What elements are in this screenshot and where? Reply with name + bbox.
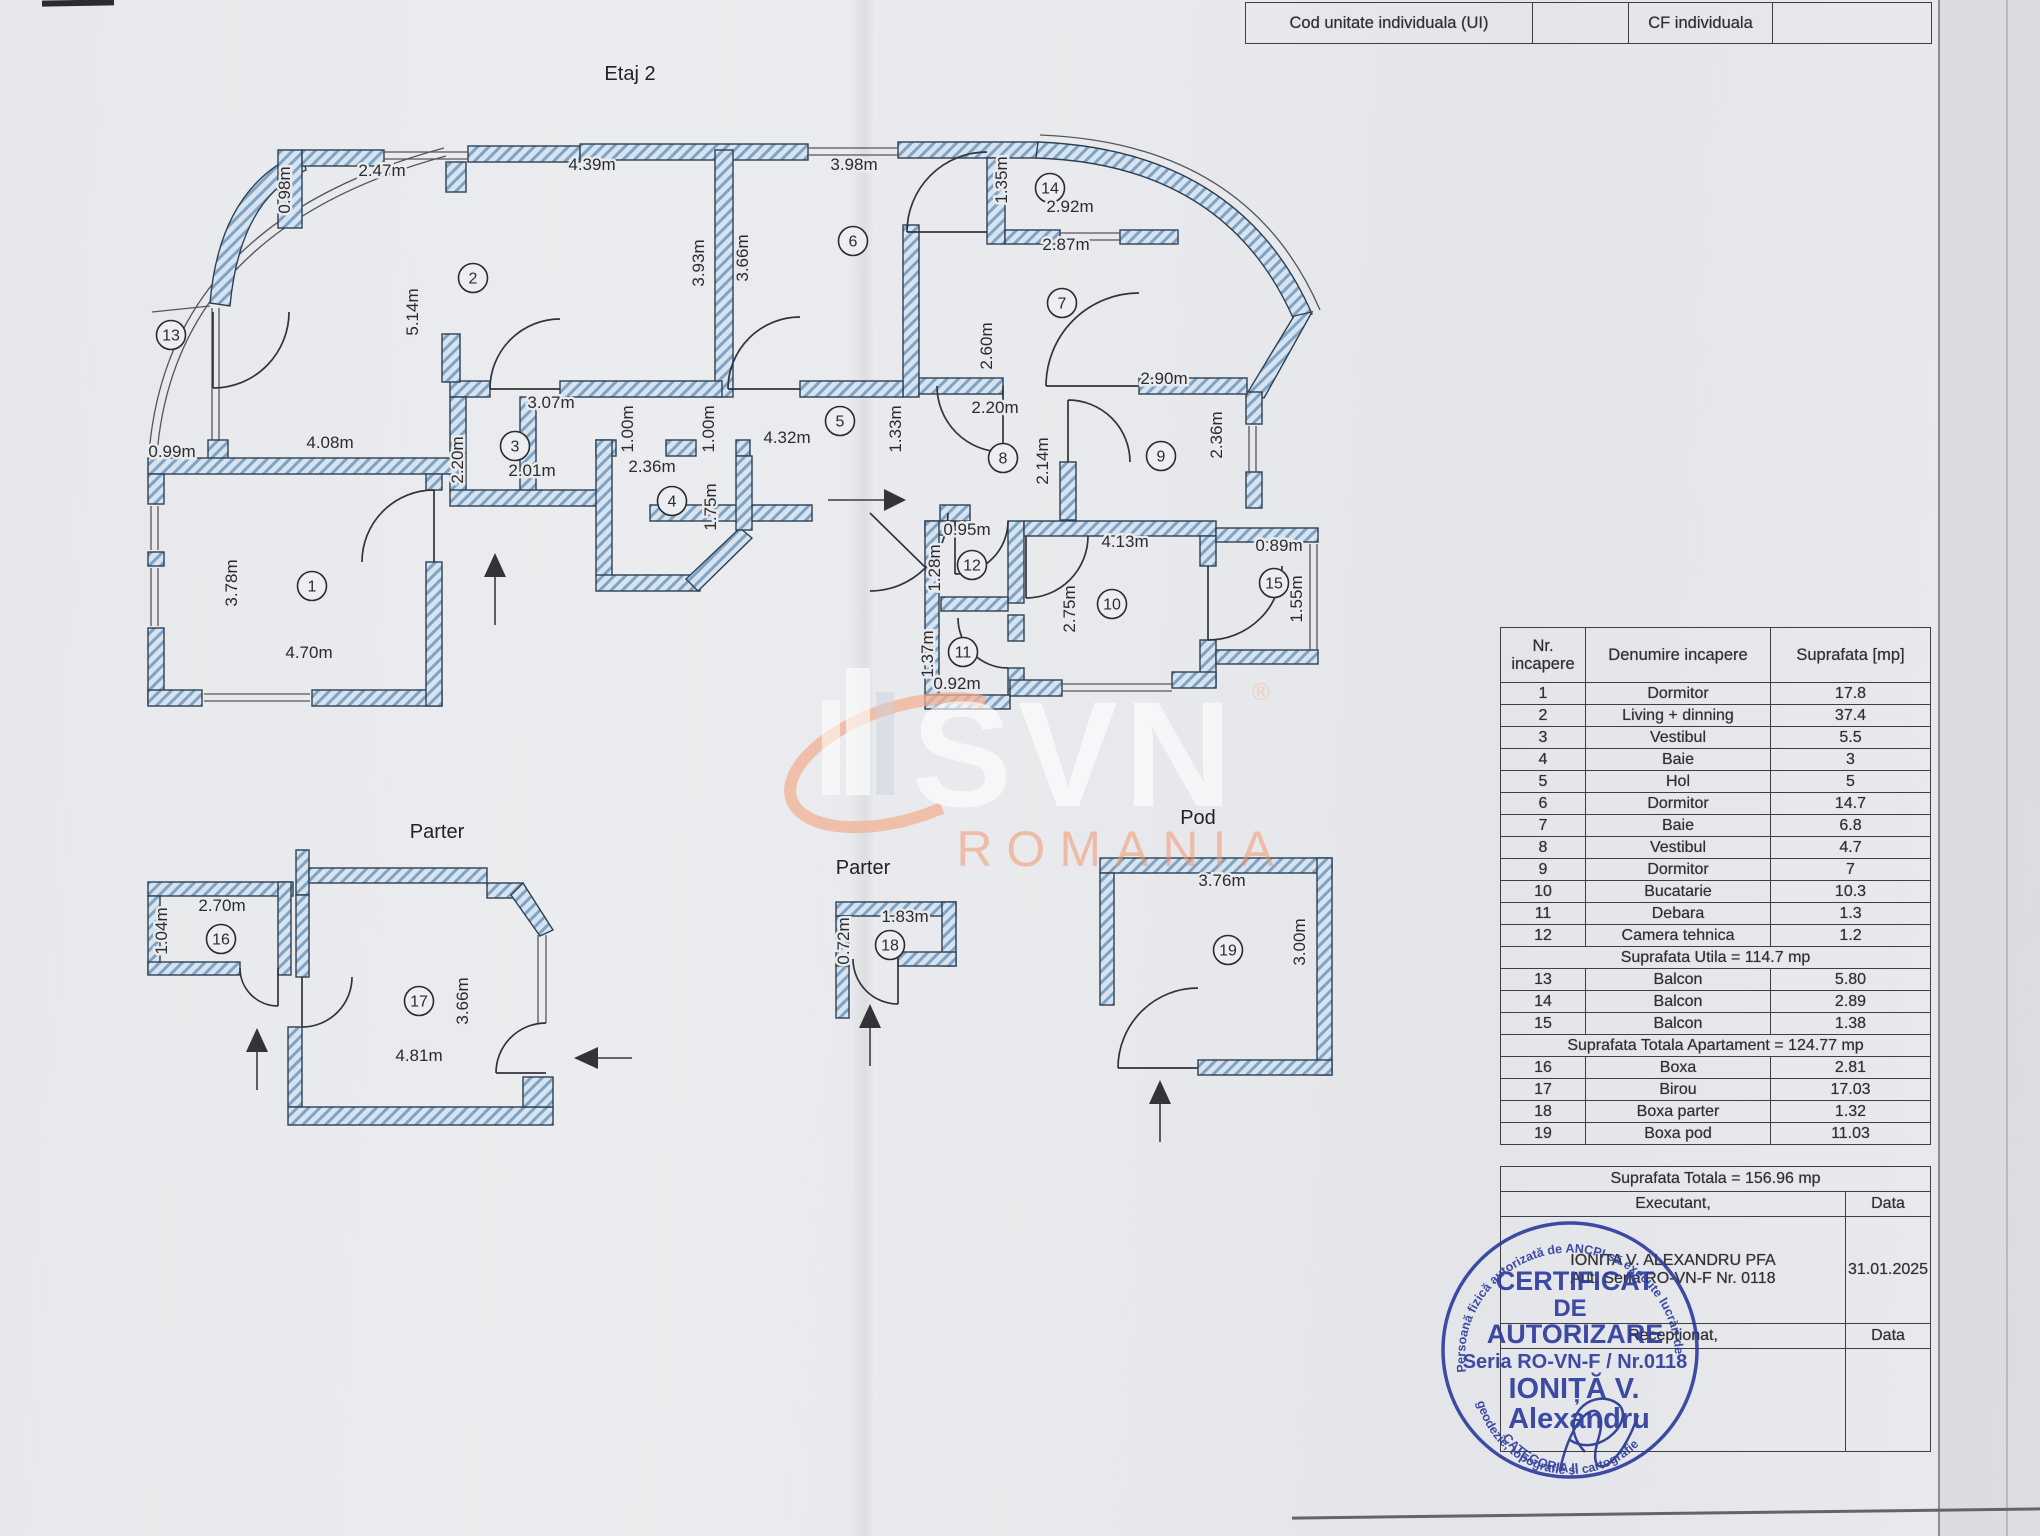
data-label-cell: Data bbox=[1846, 1324, 1931, 1349]
room-name-cell: Dormitor bbox=[1586, 793, 1771, 815]
room-nr-cell: 5 bbox=[1501, 771, 1586, 793]
dimension-label: 2.90m bbox=[1140, 369, 1187, 388]
room-area-cell: 1.32 bbox=[1771, 1101, 1931, 1123]
dimension-label: 0.72m bbox=[834, 917, 853, 964]
etaj2-plan bbox=[148, 135, 1320, 709]
dimension-label: 3.93m bbox=[689, 239, 708, 286]
cf-individuala-cell: CF individuala bbox=[1629, 3, 1773, 44]
room-nr-cell: 17 bbox=[1501, 1079, 1586, 1101]
svn-watermark: SVN ® ROMANIA bbox=[790, 668, 1288, 877]
dimension-label: 4.81m bbox=[395, 1046, 442, 1065]
suprafata-totala-cell: Suprafata Totala = 156.96 mp bbox=[1501, 1167, 1931, 1192]
room-number: 18 bbox=[881, 938, 899, 955]
room-name-cell: Baie bbox=[1586, 815, 1771, 837]
paper-fold-line bbox=[2006, 0, 2008, 1536]
dimension-label: 2.01m bbox=[508, 461, 555, 480]
table-header-row: Nr. incapere Denumire incapere Suprafata… bbox=[1501, 628, 1931, 683]
receptionat-label-cell: Receptionat, bbox=[1501, 1324, 1846, 1349]
dimension-label: 4.08m bbox=[306, 433, 353, 452]
room-number: 2 bbox=[469, 271, 478, 288]
data-label-cell: Data bbox=[1846, 1192, 1931, 1217]
room-area-cell: 37.4 bbox=[1771, 705, 1931, 727]
dimension-label: 3.66m bbox=[733, 234, 752, 281]
room-area-cell: 4.7 bbox=[1771, 837, 1931, 859]
room-area-cell: 5.80 bbox=[1771, 969, 1931, 991]
dimension-label: 3.66m bbox=[453, 977, 472, 1024]
up-arrow-icon bbox=[246, 1028, 268, 1090]
dimension-label: 2.60m bbox=[977, 322, 996, 369]
dimension-label: 1.55m bbox=[1287, 575, 1306, 622]
table-row: 2Living + dinning37.4 bbox=[1501, 705, 1931, 727]
parter-left-labels: 2.70m1.04m16173.66m4.81m bbox=[152, 896, 472, 1065]
table-row: Receptionat, Data bbox=[1501, 1324, 1931, 1349]
dimension-label: 1.83m bbox=[881, 907, 928, 926]
table-row: 16Boxa2.81 bbox=[1501, 1057, 1931, 1079]
up-arrow-icon bbox=[859, 1004, 881, 1066]
room-number: 8 bbox=[999, 451, 1008, 468]
pod-labels: 3.76m193.00m bbox=[1198, 871, 1309, 966]
col-header-suprafata: Suprafata [mp] bbox=[1771, 628, 1931, 683]
date-cell: 31.01.2025 bbox=[1846, 1217, 1931, 1324]
room-area-cell: 6.8 bbox=[1771, 815, 1931, 837]
dimension-label: 1.00m bbox=[699, 405, 718, 452]
room-number: 19 bbox=[1219, 943, 1237, 960]
dimension-label: 1.28m bbox=[925, 544, 944, 591]
subtotal-cell: Suprafata Totala Apartament = 124.77 mp bbox=[1501, 1035, 1931, 1057]
dimension-label: 2.36m bbox=[628, 457, 675, 476]
executant-authorization: Aut. Seria RO-VN-F Nr. 0118 bbox=[1503, 1270, 1843, 1288]
table-row: 19Boxa pod11.03 bbox=[1501, 1123, 1931, 1145]
room-name-cell: Birou bbox=[1586, 1079, 1771, 1101]
room-name-cell: Baie bbox=[1586, 749, 1771, 771]
subtotal-row: Suprafata Utila = 114.7 mp bbox=[1501, 947, 1931, 969]
room-number: 16 bbox=[212, 932, 230, 949]
room-nr-cell: 9 bbox=[1501, 859, 1586, 881]
total-row: Suprafata Totala = 156.96 mp bbox=[1501, 1167, 1931, 1192]
room-number: 17 bbox=[410, 994, 428, 1011]
table-row: 3Vestibul5.5 bbox=[1501, 727, 1931, 749]
empty-cell bbox=[1501, 1349, 1846, 1452]
room-number: 3 bbox=[511, 439, 520, 456]
dimension-label: 1.75m bbox=[701, 483, 720, 530]
room-area-cell: 5.5 bbox=[1771, 727, 1931, 749]
watermark-svn-text: SVN bbox=[912, 670, 1238, 838]
room-areas-table: Nr. incapere Denumire incapere Suprafata… bbox=[1500, 627, 1931, 1145]
room-name-cell: Bucatarie bbox=[1586, 881, 1771, 903]
room-name-cell: Vestibul bbox=[1586, 727, 1771, 749]
executant-row: IONITA V. ALEXANDRU PFA Aut. Seria RO-VN… bbox=[1501, 1217, 1931, 1324]
dimension-label: 5.14m bbox=[403, 288, 422, 335]
room-name-cell: Debara bbox=[1586, 903, 1771, 925]
table-row: 9Dormitor7 bbox=[1501, 859, 1931, 881]
room-area-cell: 3 bbox=[1771, 749, 1931, 771]
table-row: 18Boxa parter1.32 bbox=[1501, 1101, 1931, 1123]
table-row: 6Dormitor14.7 bbox=[1501, 793, 1931, 815]
parter-middle-plan bbox=[836, 902, 956, 1066]
dimension-label: 1.04m bbox=[152, 907, 171, 954]
room-number: 10 bbox=[1103, 597, 1121, 614]
watermark-bar-icon bbox=[876, 692, 894, 795]
room-area-cell: 1.38 bbox=[1771, 1013, 1931, 1035]
dimension-label: 4.70m bbox=[285, 643, 332, 662]
room-nr-cell: 15 bbox=[1501, 1013, 1586, 1035]
watermark-bar-icon bbox=[846, 668, 870, 795]
dimension-label: 2.36m bbox=[1207, 411, 1226, 458]
room-name-cell: Living + dinning bbox=[1586, 705, 1771, 727]
subtotal-row: Suprafata Totala Apartament = 124.77 mp bbox=[1501, 1035, 1931, 1057]
room-number: 13 bbox=[162, 328, 180, 345]
col-header-nr: Nr. incapere bbox=[1501, 628, 1586, 683]
room-name-cell: Dormitor bbox=[1586, 859, 1771, 881]
dimension-label: 2.20m bbox=[448, 436, 467, 483]
dimension-label: 4.39m bbox=[568, 155, 615, 174]
dimension-label: 1.33m bbox=[886, 405, 905, 452]
dimension-label: 2.87m bbox=[1042, 235, 1089, 254]
table-row: 4Baie3 bbox=[1501, 749, 1931, 771]
room-area-cell: 2.89 bbox=[1771, 991, 1931, 1013]
scanned-document-page: .w{fill:url(#h);stroke:#2e3f52;stroke-wi… bbox=[0, 0, 2040, 1536]
dimension-label: 0.95m bbox=[943, 520, 990, 539]
room-number: 12 bbox=[963, 558, 981, 575]
dimension-label: 1.00m bbox=[618, 405, 637, 452]
dimension-label: 4.32m bbox=[763, 428, 810, 447]
table-row: 1Dormitor17.8 bbox=[1501, 683, 1931, 705]
subtotal-cell: Suprafata Utila = 114.7 mp bbox=[1501, 947, 1931, 969]
executant-name-cell: IONITA V. ALEXANDRU PFA Aut. Seria RO-VN… bbox=[1501, 1217, 1846, 1324]
dimension-label: 3.07m bbox=[527, 393, 574, 412]
room-area-cell: 14.7 bbox=[1771, 793, 1931, 815]
room-number: 4 bbox=[668, 494, 677, 511]
dimension-label: 3.00m bbox=[1290, 918, 1309, 965]
room-name-cell: Camera tehnica bbox=[1586, 925, 1771, 947]
table-row: 15Balcon1.38 bbox=[1501, 1013, 1931, 1035]
room-area-cell: 17.03 bbox=[1771, 1079, 1931, 1101]
room-number: 15 bbox=[1265, 576, 1283, 593]
room-number: 11 bbox=[955, 645, 972, 662]
watermark-bar-icon bbox=[822, 700, 840, 795]
dimension-label: 3.98m bbox=[830, 155, 877, 174]
room-nr-cell: 19 bbox=[1501, 1123, 1586, 1145]
entrance-arrow-icon bbox=[828, 489, 906, 511]
dimension-label: 2.14m bbox=[1033, 437, 1052, 484]
room-area-cell: 2.81 bbox=[1771, 1057, 1931, 1079]
room-area-cell: 10.3 bbox=[1771, 881, 1931, 903]
dimension-label: 2.47m bbox=[358, 161, 405, 180]
room-nr-cell: 1 bbox=[1501, 683, 1586, 705]
table-row: 7Baie6.8 bbox=[1501, 815, 1931, 837]
room-nr-cell: 14 bbox=[1501, 991, 1586, 1013]
dimension-label: 0.89m bbox=[1255, 536, 1302, 555]
room-area-cell: 11.03 bbox=[1771, 1123, 1931, 1145]
room-area-cell: 7 bbox=[1771, 859, 1931, 881]
table-row: Executant, Data bbox=[1501, 1192, 1931, 1217]
room-number: 7 bbox=[1058, 296, 1067, 313]
dimension-label: 4.13m bbox=[1101, 532, 1148, 551]
room-name-cell: Balcon bbox=[1586, 1013, 1771, 1035]
room-number: 6 bbox=[849, 234, 858, 251]
room-nr-cell: 7 bbox=[1501, 815, 1586, 837]
dimension-label: 2.70m bbox=[198, 896, 245, 915]
left-arrow-icon bbox=[574, 1047, 632, 1069]
table-row: Cod unitate individuala (UI) CF individu… bbox=[1246, 3, 1932, 44]
dimension-label: 3.78m bbox=[222, 559, 241, 606]
room-area-cell: 1.3 bbox=[1771, 903, 1931, 925]
room-name-cell: Boxa parter bbox=[1586, 1101, 1771, 1123]
room-area-cell: 1.2 bbox=[1771, 925, 1931, 947]
room-number: 9 bbox=[1157, 449, 1166, 466]
room-number: 5 bbox=[836, 414, 845, 431]
table-row: 11Debara1.3 bbox=[1501, 903, 1931, 925]
room-name-cell: Boxa bbox=[1586, 1057, 1771, 1079]
room-nr-cell: 11 bbox=[1501, 903, 1586, 925]
col-header-denumire: Denumire incapere bbox=[1586, 628, 1771, 683]
watermark-registered-icon: ® bbox=[1252, 679, 1270, 706]
cod-unitate-cell: Cod unitate individuala (UI) bbox=[1246, 3, 1533, 44]
etaj2-title: Etaj 2 bbox=[604, 63, 655, 85]
executant-label-cell: Executant, bbox=[1501, 1192, 1846, 1217]
empty-cell bbox=[1773, 3, 1932, 44]
room-name-cell: Balcon bbox=[1586, 969, 1771, 991]
up-arrow-icon bbox=[484, 553, 506, 625]
room-number: 1 bbox=[308, 579, 317, 596]
table-row: 14Balcon2.89 bbox=[1501, 991, 1931, 1013]
room-nr-cell: 8 bbox=[1501, 837, 1586, 859]
executant-name: IONITA V. ALEXANDRU PFA bbox=[1503, 1252, 1843, 1270]
room-nr-cell: 6 bbox=[1501, 793, 1586, 815]
dimension-label: 2.92m bbox=[1046, 197, 1093, 216]
table-row: 13Balcon5.80 bbox=[1501, 969, 1931, 991]
up-arrow-icon bbox=[1149, 1080, 1171, 1142]
room-area-cell: 5 bbox=[1771, 771, 1931, 793]
room-nr-cell: 3 bbox=[1501, 727, 1586, 749]
paper-fold bbox=[1938, 0, 2040, 1536]
pod-plan bbox=[1100, 858, 1332, 1142]
dimension-label: 1.35m bbox=[992, 156, 1011, 203]
room-number: 14 bbox=[1041, 181, 1059, 198]
table-row: 10Bucatarie10.3 bbox=[1501, 881, 1931, 903]
table-row: 8Vestibul4.7 bbox=[1501, 837, 1931, 859]
dimension-label: 2.20m bbox=[971, 398, 1018, 417]
dimension-label: 0.99m bbox=[148, 442, 195, 461]
room-nr-cell: 10 bbox=[1501, 881, 1586, 903]
room-nr-cell: 4 bbox=[1501, 749, 1586, 771]
room-name-cell: Balcon bbox=[1586, 991, 1771, 1013]
watermark-romania-text: ROMANIA bbox=[956, 821, 1287, 877]
dimension-label: 0.98m bbox=[275, 166, 294, 213]
room-nr-cell: 13 bbox=[1501, 969, 1586, 991]
dimension-label: 2.75m bbox=[1060, 585, 1079, 632]
empty-cell bbox=[1846, 1349, 1931, 1452]
room-name-cell: Boxa pod bbox=[1586, 1123, 1771, 1145]
cadastral-header-table: Cod unitate individuala (UI) CF individu… bbox=[1245, 2, 1932, 44]
room-area-cell: 17.8 bbox=[1771, 683, 1931, 705]
room-nr-cell: 18 bbox=[1501, 1101, 1586, 1123]
room-name-cell: Dormitor bbox=[1586, 683, 1771, 705]
room-name-cell: Vestibul bbox=[1586, 837, 1771, 859]
executant-table: Suprafata Totala = 156.96 mp Executant, … bbox=[1500, 1166, 1931, 1452]
room-nr-cell: 16 bbox=[1501, 1057, 1586, 1079]
table-row: 5Hol5 bbox=[1501, 771, 1931, 793]
parter-middle-title: Parter bbox=[836, 857, 891, 879]
table-row: 17Birou17.03 bbox=[1501, 1079, 1931, 1101]
room-nr-cell: 12 bbox=[1501, 925, 1586, 947]
parter-left-plan bbox=[148, 850, 632, 1125]
empty-cell bbox=[1533, 3, 1629, 44]
parter-left-title: Parter bbox=[410, 821, 465, 843]
table-row: 12Camera tehnica1.2 bbox=[1501, 925, 1931, 947]
empty-row bbox=[1501, 1349, 1931, 1452]
room-name-cell: Hol bbox=[1586, 771, 1771, 793]
room-nr-cell: 2 bbox=[1501, 705, 1586, 727]
